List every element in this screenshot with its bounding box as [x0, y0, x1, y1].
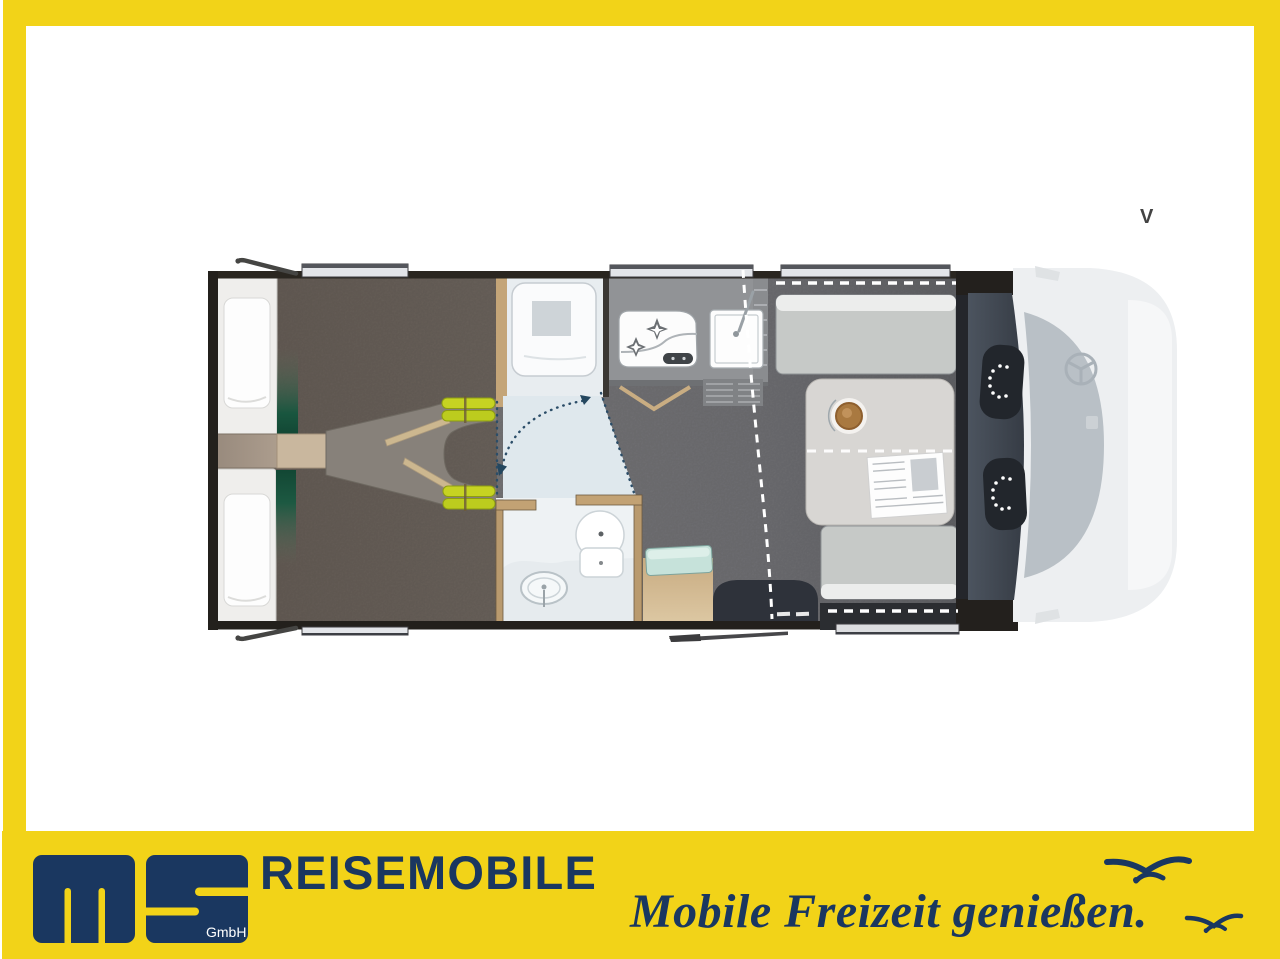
svg-text:Mobile Freizeit genießen.: Mobile Freizeit genießen.: [629, 885, 1148, 938]
svg-text:REISEMOBILE: REISEMOBILE: [260, 846, 597, 899]
svg-text:V: V: [1140, 206, 1154, 228]
svg-text:GmbH: GmbH: [206, 924, 246, 940]
